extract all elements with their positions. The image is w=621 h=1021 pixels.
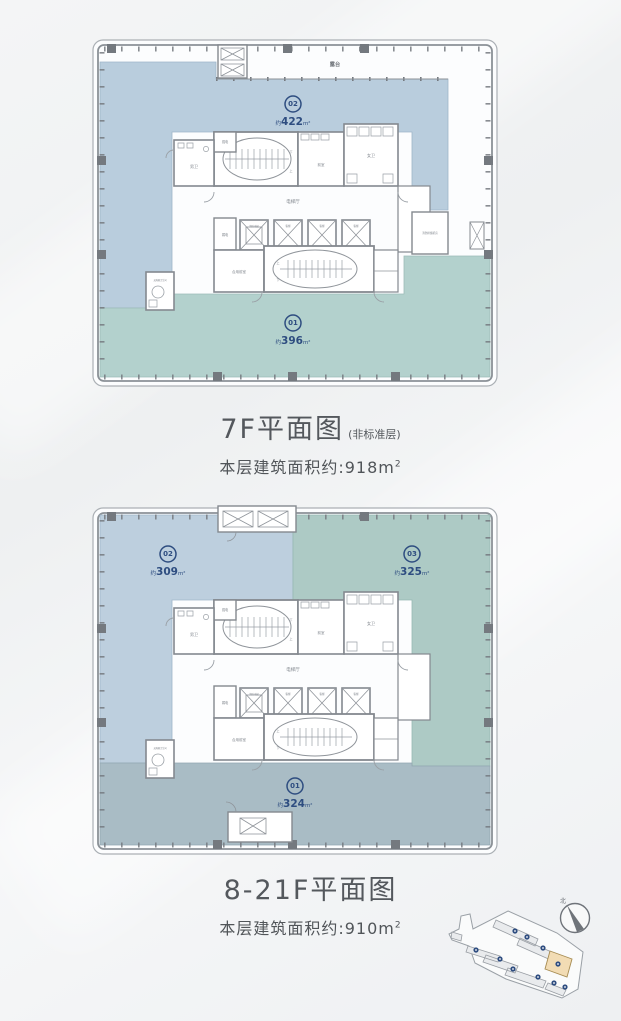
plan2-area-text: 本层建筑面积约:910m bbox=[219, 919, 395, 938]
unit-number: 01 bbox=[290, 782, 300, 790]
plan1-title-block: 7F平面图(非标准层) 本层建筑面积约:918m2 bbox=[0, 407, 621, 478]
plan1-area-line: 本层建筑面积约:918m2 bbox=[0, 454, 621, 478]
louver-shaft bbox=[218, 506, 296, 532]
unit-number: 01 bbox=[288, 319, 298, 327]
terrace-label: 露台 bbox=[330, 60, 340, 68]
plan2-title-block: 8-21F平面图 本层建筑面积约:910m2 bbox=[0, 868, 621, 939]
smoke-exhaust-label: 消防排烟机房 bbox=[422, 231, 438, 235]
unit-number: 02 bbox=[163, 550, 173, 558]
plan1-title-note: (非标准层) bbox=[348, 428, 401, 441]
plan1-area-text: 本层建筑面积约:918m bbox=[219, 458, 395, 477]
plan-7f: 露台 消防排烟机房 02 约422m² 01 约396m² bbox=[93, 40, 497, 386]
louver-shaft bbox=[218, 45, 247, 78]
entrance-structure bbox=[228, 812, 292, 842]
unit-number: 03 bbox=[407, 550, 417, 558]
plan2-title: 8-21F平面图 bbox=[224, 875, 398, 906]
plan2-area-line: 本层建筑面积约:910m2 bbox=[0, 915, 621, 939]
plan1-title: 7F平面图 bbox=[220, 414, 344, 445]
unit-number: 02 bbox=[288, 100, 298, 108]
plan-8-21f: 02 约309m² 03 约325m² 01 约324m² bbox=[93, 506, 497, 854]
plan2-area-sup: 2 bbox=[395, 921, 402, 931]
plan1-area-sup: 2 bbox=[395, 460, 402, 470]
